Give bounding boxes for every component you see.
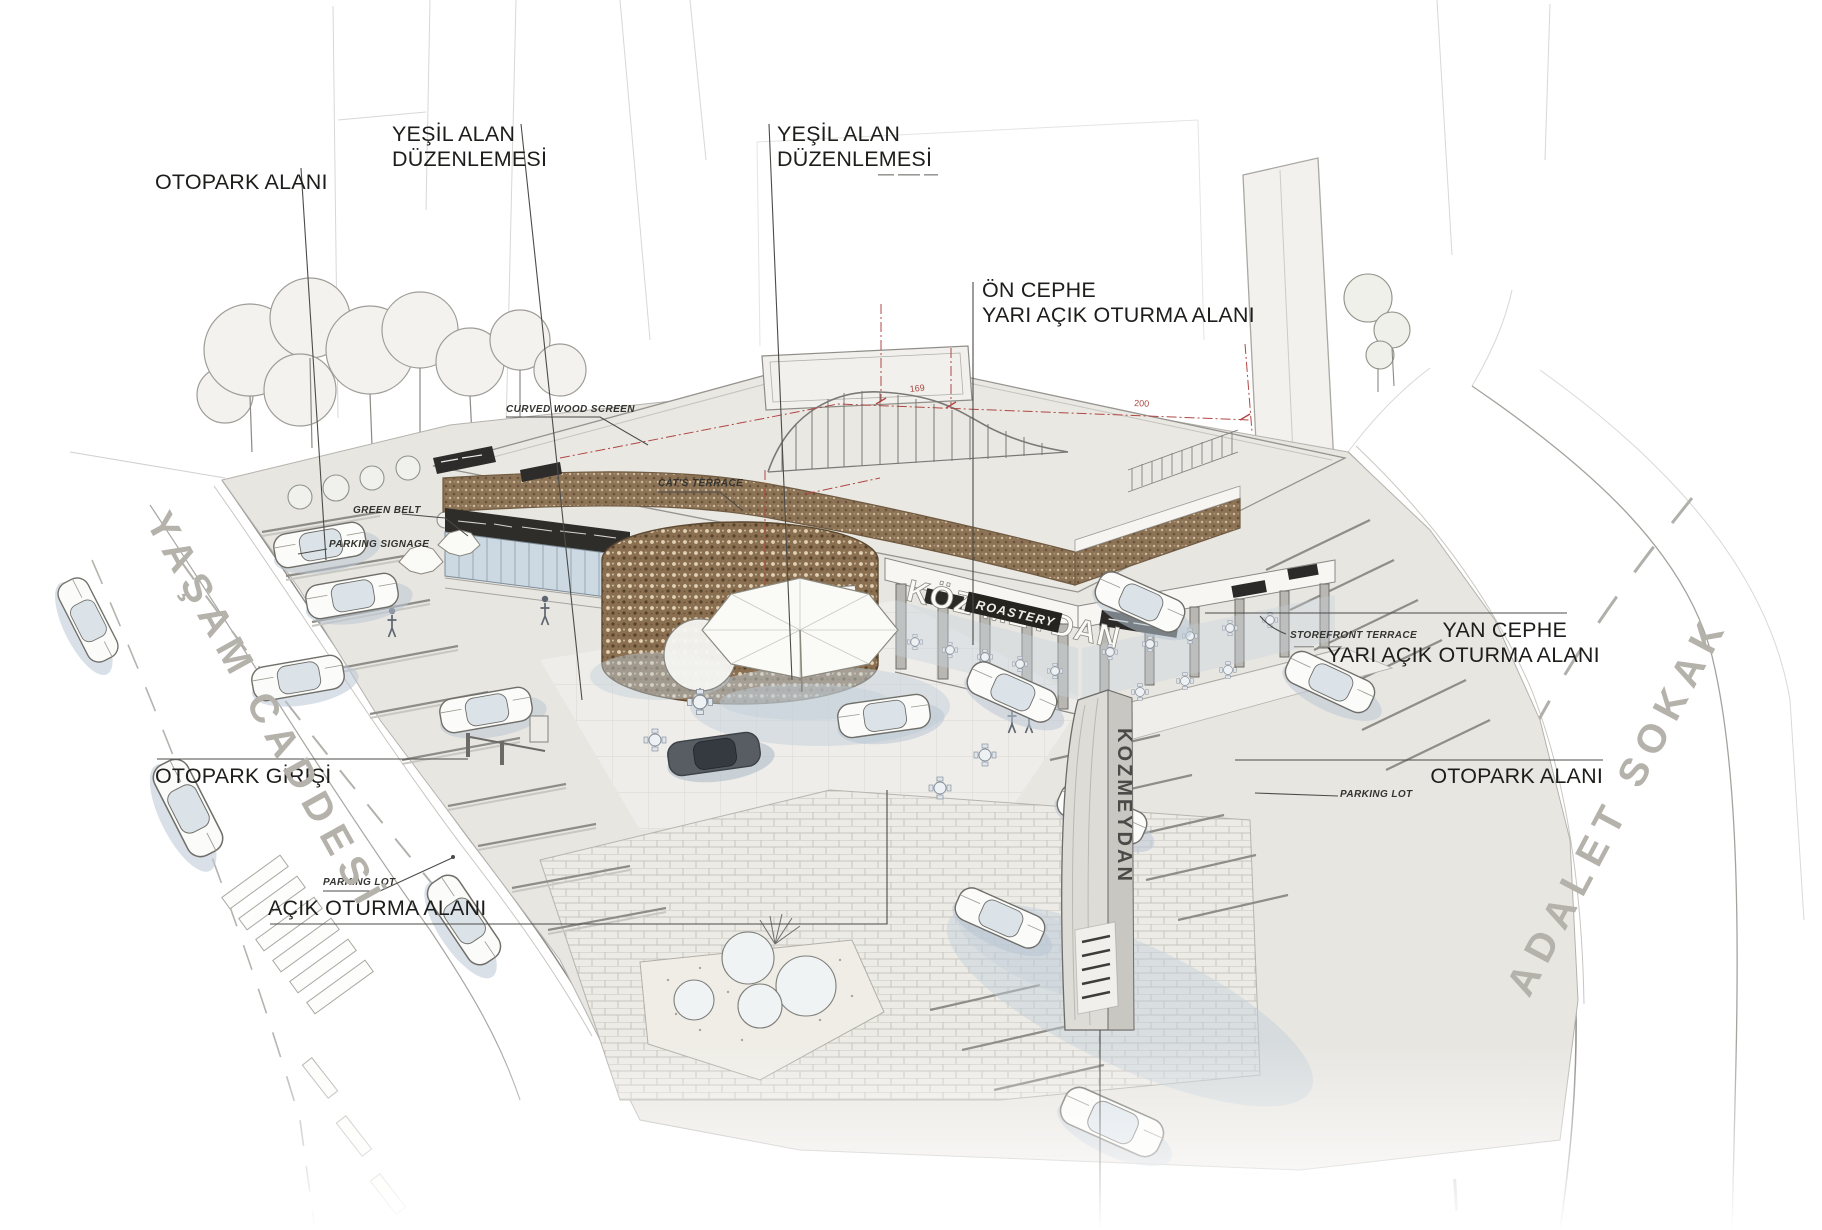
background-tower-right [1243, 158, 1334, 484]
totem-sign-text: KOZMEYDAN [1113, 728, 1135, 884]
callout-curved-wood-screen: CURVED WOOD SCREEN [506, 404, 635, 415]
label-yan-cephe-line2: YARI AÇIK OTURMA ALANI [1327, 643, 1567, 668]
site-plan-rendering: LANNON KÖZ MEYDAN ROASTERY [0, 0, 1822, 1230]
label-yesil-alan-1-line1: YEŞİL ALAN [392, 122, 512, 147]
dimension-169: 169 [909, 382, 925, 394]
callout-parking-lot-right: PARKING LOT [1340, 789, 1413, 800]
tree-cluster-right [1344, 274, 1410, 392]
label-yesil-alan-1: YEŞİL ALAN DÜZENLEMESİ [392, 122, 512, 172]
label-yesil-alan-2-line1: YEŞİL ALAN [777, 122, 932, 147]
callout-storefront-terrace: STOREFRONT TERRACE [1290, 630, 1417, 641]
label-otopark-alani-left: OTOPARK ALANI [155, 170, 328, 195]
label-yesil-alan-1-line2: DÜZENLEMESİ [392, 147, 512, 172]
label-yan-cephe: YAN CEPHE YARI AÇIK OTURMA ALANI [1327, 618, 1567, 668]
callout-parking-signage: PARKING SIGNAGE [329, 539, 429, 550]
label-on-cephe: ÖN CEPHE YARI AÇIK OTURMA ALANI [982, 278, 1255, 328]
bottom-fade [0, 1040, 1822, 1230]
label-on-cephe-line1: ÖN CEPHE [982, 278, 1255, 303]
label-otopark-alani-right: OTOPARK ALANI [1403, 764, 1603, 789]
callout-cats-terrace: CAT'S TERRACE [658, 478, 743, 489]
dimension-200: 200 [1134, 398, 1150, 409]
leader-dot [451, 855, 455, 859]
label-yesil-alan-2-line2: DÜZENLEMESİ [777, 147, 932, 172]
label-yesil-alan-2: YEŞİL ALAN DÜZENLEMESİ [777, 122, 932, 172]
tiny-note-marks [878, 174, 938, 176]
callout-green-belt: GREEN BELT [353, 505, 421, 516]
label-on-cephe-line2: YARI AÇIK OTURMA ALANI [982, 303, 1255, 328]
